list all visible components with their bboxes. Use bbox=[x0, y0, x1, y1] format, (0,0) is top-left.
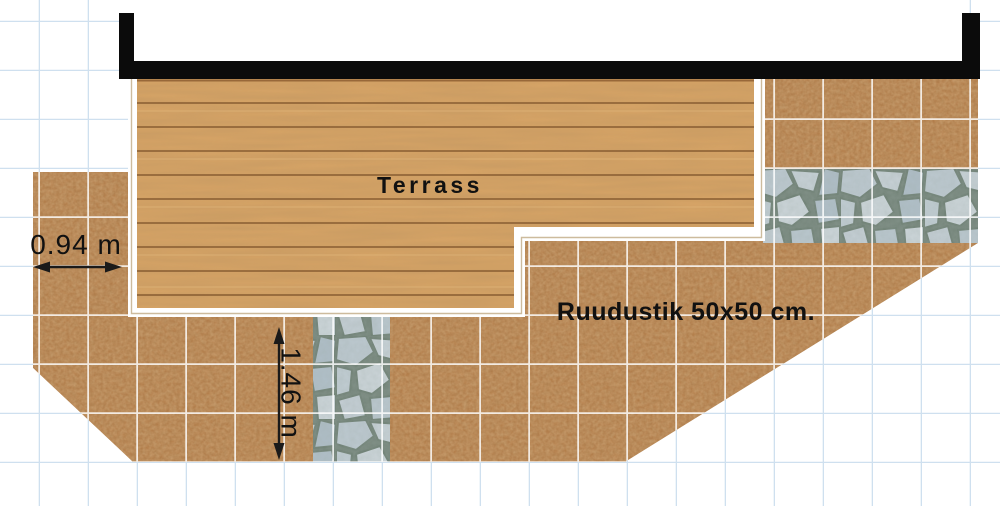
garden-plan-canvas: 0.94 m 1.46 m Terrass Ruudustik 50x50 cm… bbox=[0, 0, 1000, 506]
dimension-horizontal-value: 0.94 m bbox=[30, 229, 122, 260]
house-interior bbox=[134, 0, 962, 61]
wall-right-return bbox=[962, 13, 980, 79]
terrace-label: Terrass bbox=[377, 172, 483, 198]
plan-drawing: 0.94 m 1.46 m Terrass Ruudustik 50x50 cm… bbox=[0, 0, 1000, 506]
dimension-horizontal: 0.94 m bbox=[30, 229, 122, 273]
grid-note-label: Ruudustik 50x50 cm. bbox=[557, 298, 815, 326]
wall-main bbox=[119, 61, 980, 79]
